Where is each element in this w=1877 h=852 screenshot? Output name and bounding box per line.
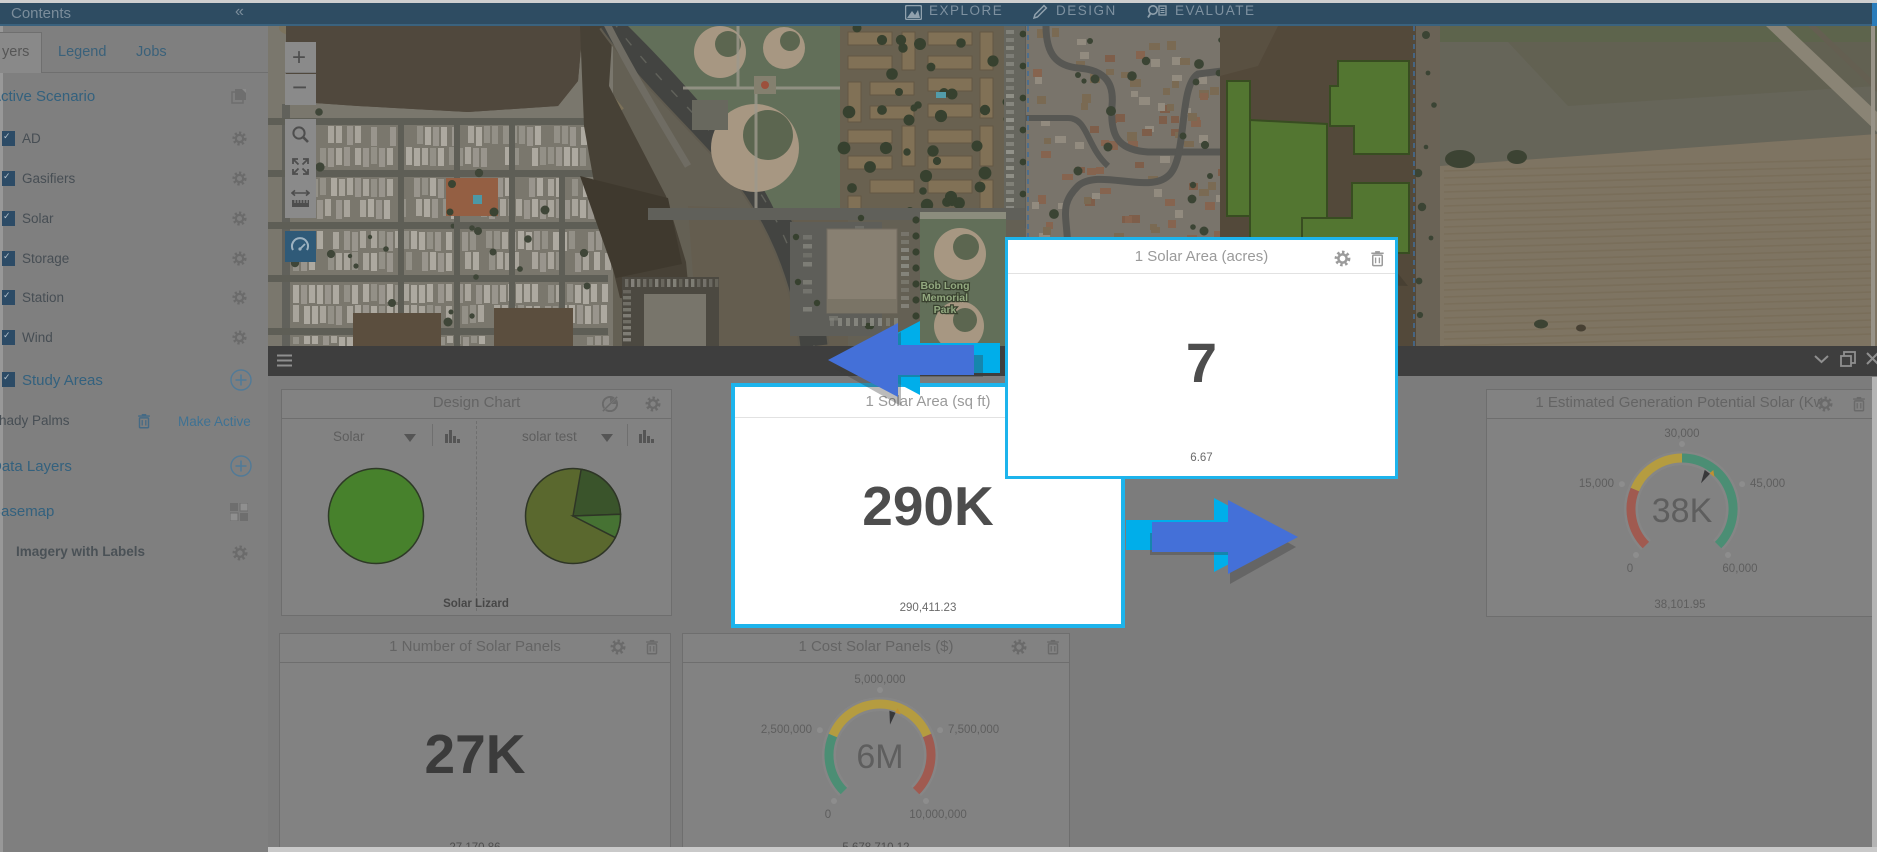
svg-text:2,500,000: 2,500,000 <box>761 724 812 736</box>
svg-text:45,000: 45,000 <box>1750 478 1785 490</box>
svg-text:30,000: 30,000 <box>1664 428 1699 440</box>
svg-text:6M: 6M <box>856 738 903 776</box>
svg-text:38K: 38K <box>1652 492 1713 530</box>
svg-text:0: 0 <box>825 809 831 821</box>
svg-text:5,000,000: 5,000,000 <box>854 674 905 686</box>
svg-text:0: 0 <box>1627 563 1633 575</box>
svg-text:7,500,000: 7,500,000 <box>948 724 999 736</box>
svg-text:60,000: 60,000 <box>1722 563 1757 575</box>
svg-text:10,000,000: 10,000,000 <box>909 809 967 821</box>
svg-text:15,000: 15,000 <box>1579 478 1614 490</box>
